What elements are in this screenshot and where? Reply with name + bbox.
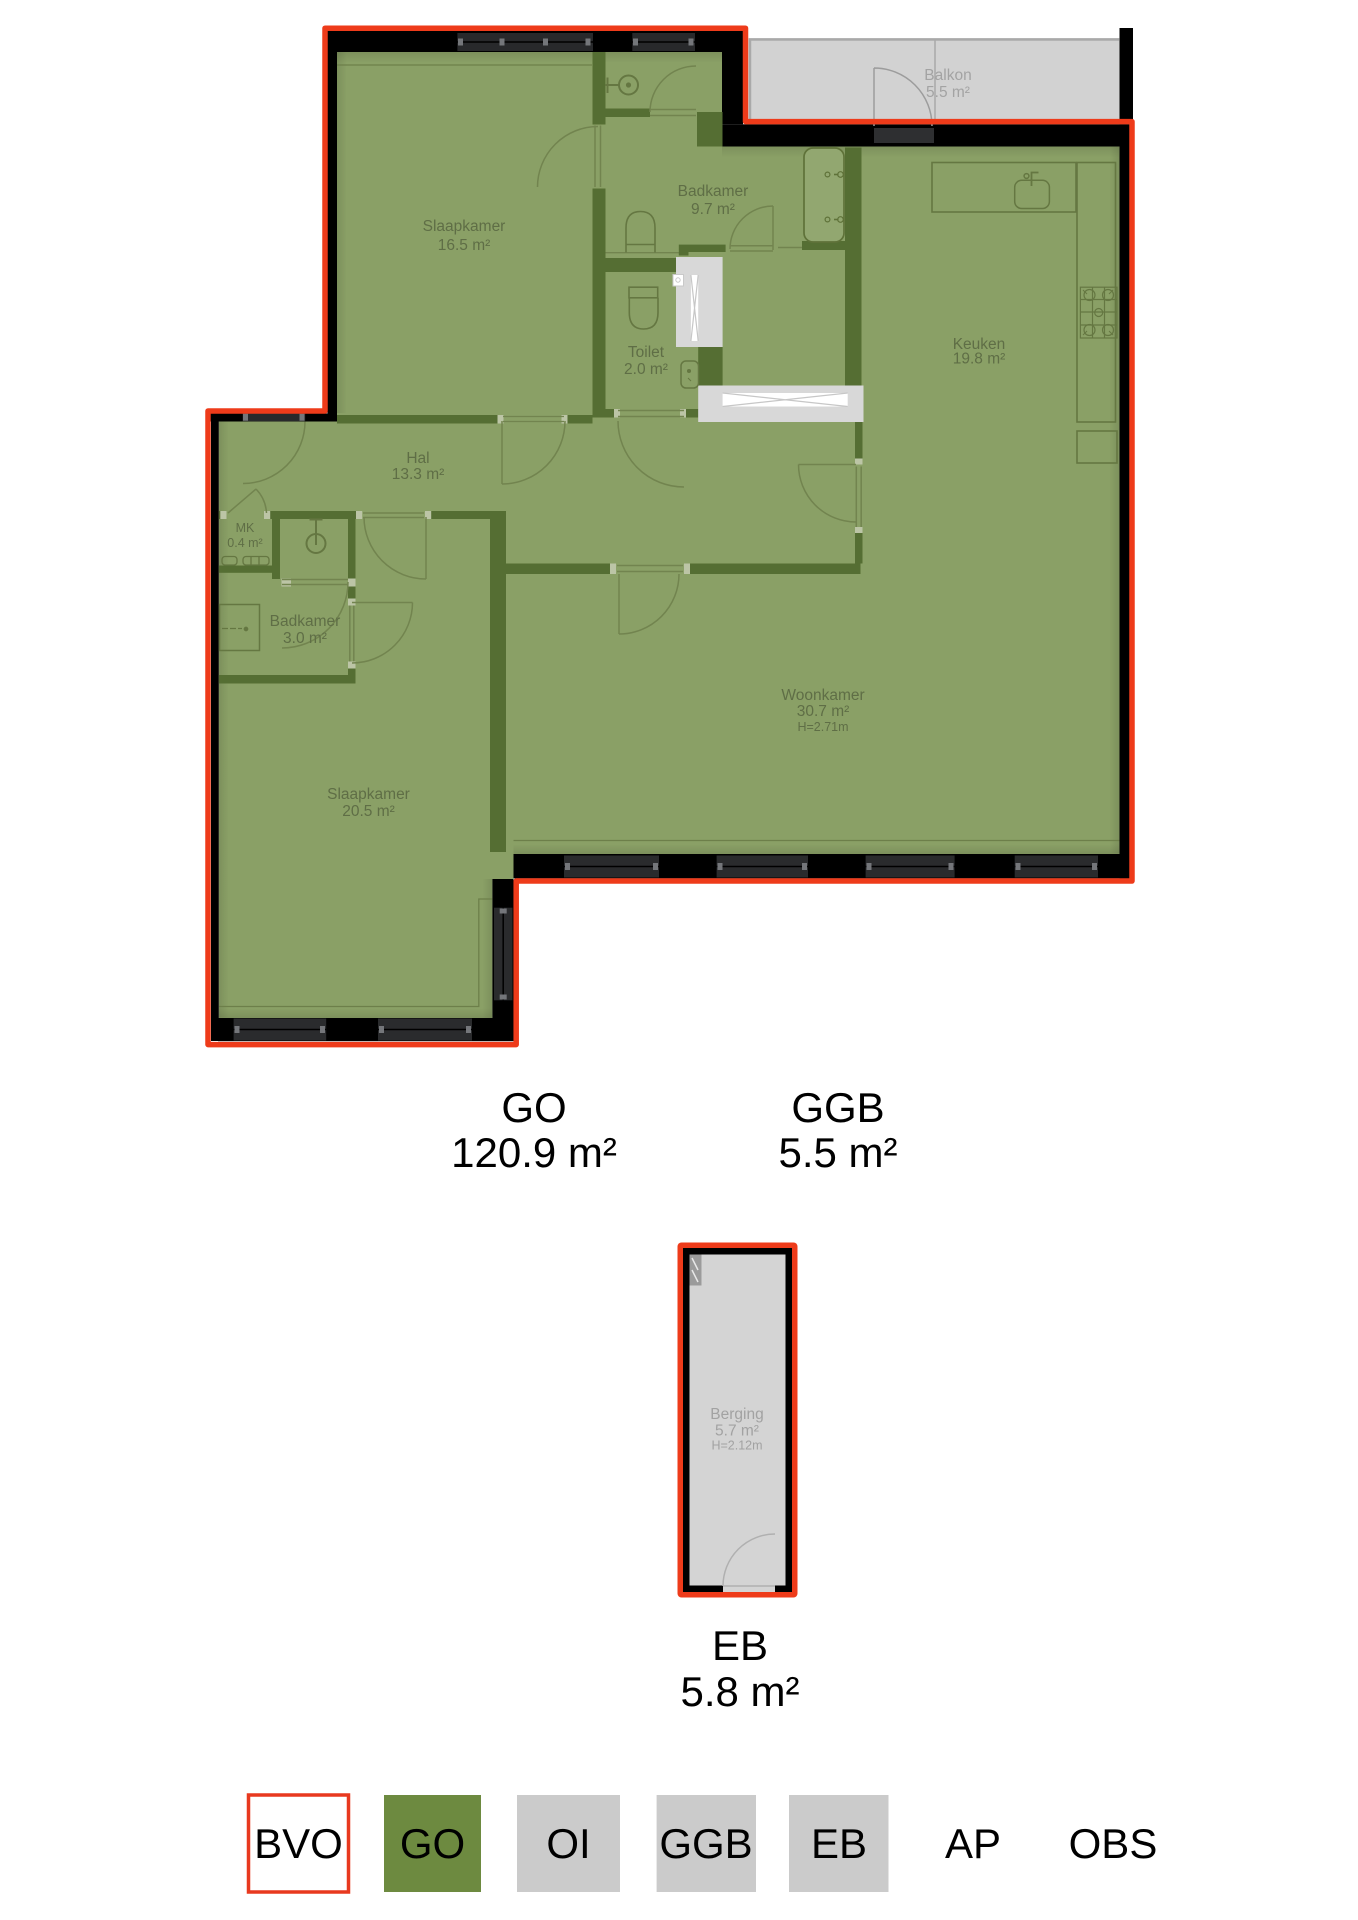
svg-text:19.8 m²: 19.8 m² — [953, 351, 1006, 368]
svg-text:120.9 m²: 120.9 m² — [451, 1129, 617, 1176]
svg-text:5.5 m²: 5.5 m² — [778, 1129, 897, 1176]
svg-text:2.0 m²: 2.0 m² — [624, 361, 668, 378]
svg-text:20.5 m²: 20.5 m² — [342, 803, 395, 820]
svg-text:5.7 m²: 5.7 m² — [715, 1423, 759, 1440]
svg-text:Woonkamer: Woonkamer — [781, 687, 864, 704]
svg-text:GGB: GGB — [659, 1820, 752, 1867]
svg-text:Badkamer: Badkamer — [678, 183, 749, 200]
svg-text:13.3 m²: 13.3 m² — [392, 466, 445, 483]
svg-text:GGB: GGB — [791, 1084, 884, 1131]
svg-text:3.0 m²: 3.0 m² — [283, 630, 327, 647]
svg-text:EB: EB — [712, 1622, 768, 1669]
svg-text:H=2.12m: H=2.12m — [711, 1439, 762, 1453]
svg-text:16.5 m²: 16.5 m² — [438, 237, 491, 254]
svg-text:BVO: BVO — [254, 1820, 343, 1867]
svg-text:Berging: Berging — [710, 1406, 763, 1423]
svg-text:0.4 m²: 0.4 m² — [227, 536, 262, 550]
svg-text:OBS: OBS — [1069, 1820, 1158, 1867]
svg-text:Slaapkamer: Slaapkamer — [327, 786, 410, 803]
svg-text:Toilet: Toilet — [628, 344, 665, 361]
svg-text:GO: GO — [400, 1820, 465, 1867]
svg-text:GO: GO — [501, 1084, 566, 1131]
svg-text:OI: OI — [546, 1820, 590, 1867]
svg-text:5.5 m²: 5.5 m² — [926, 84, 970, 101]
svg-text:30.7 m²: 30.7 m² — [797, 703, 850, 720]
svg-text:Balkon: Balkon — [924, 67, 971, 84]
svg-text:Badkamer: Badkamer — [270, 613, 341, 630]
svg-text:5.8 m²: 5.8 m² — [680, 1668, 799, 1715]
svg-text:Hal: Hal — [406, 450, 429, 467]
svg-text:9.7 m²: 9.7 m² — [691, 201, 735, 218]
svg-text:AP: AP — [945, 1820, 1001, 1867]
svg-text:H=2.71m: H=2.71m — [797, 720, 848, 734]
svg-text:EB: EB — [811, 1820, 867, 1867]
svg-text:Slaapkamer: Slaapkamer — [423, 218, 506, 235]
svg-text:MK: MK — [236, 521, 255, 535]
